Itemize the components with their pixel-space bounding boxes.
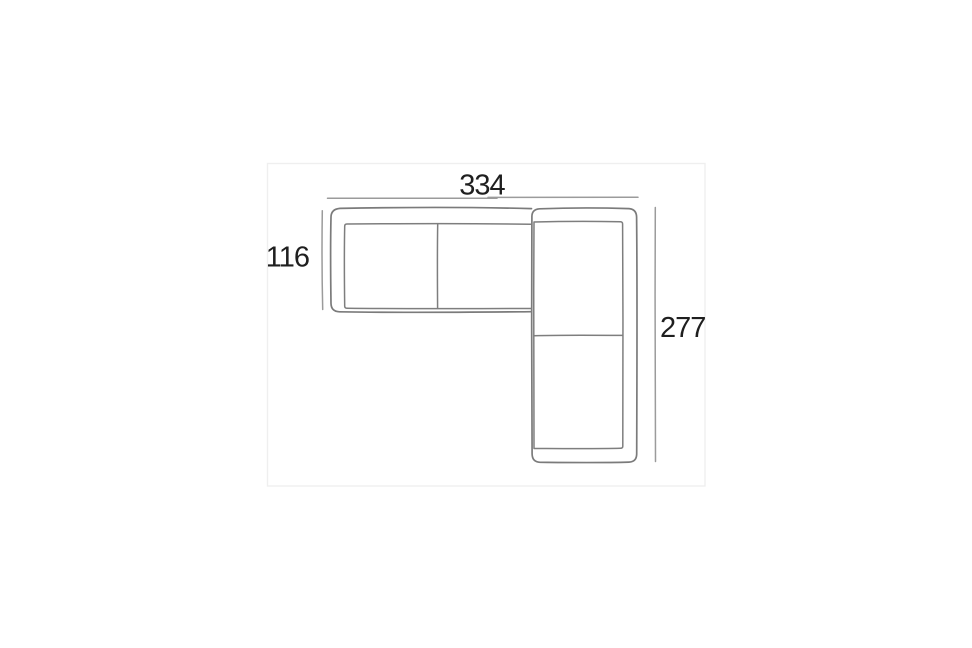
- dimension-lines: [322, 197, 655, 461]
- dimension-label-left-depth: 116: [266, 242, 309, 274]
- corner-section-cushion-divider: [534, 335, 623, 336]
- sofa-dimension-drawing: 334 116 277: [0, 0, 972, 648]
- drawing-area: 334 116 277: [0, 0, 972, 648]
- dimension-label-top-width: 334: [459, 170, 505, 202]
- dimension-label-right-height: 277: [660, 312, 705, 344]
- dimension-line-left: [322, 211, 323, 310]
- sofa-outline: [331, 207, 637, 462]
